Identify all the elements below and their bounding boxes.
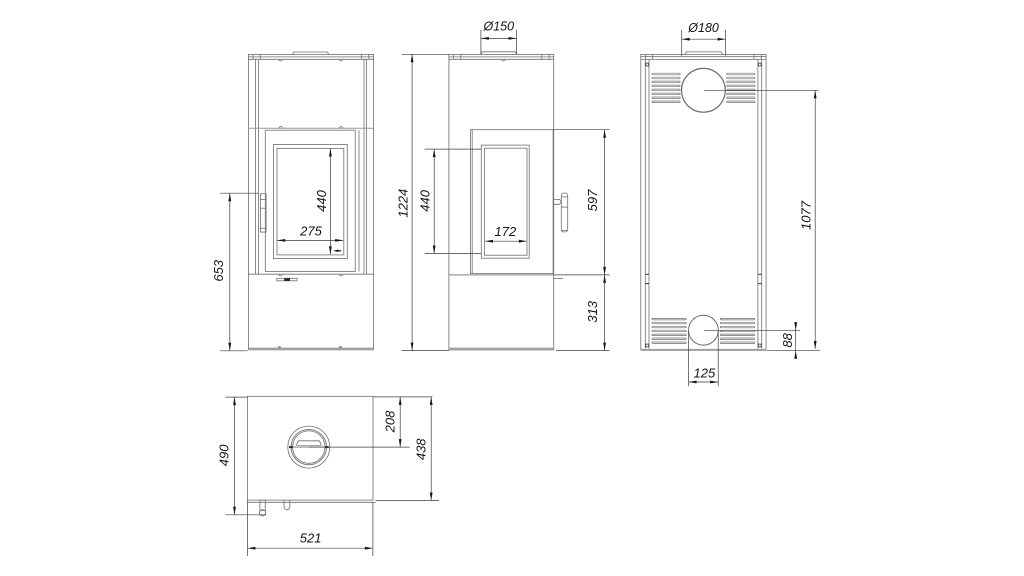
svg-text:313: 313 xyxy=(585,300,600,322)
svg-text:490: 490 xyxy=(217,444,232,466)
svg-text:597: 597 xyxy=(585,189,600,211)
svg-text:88: 88 xyxy=(780,332,795,347)
svg-text:275: 275 xyxy=(299,224,322,239)
svg-text:440: 440 xyxy=(314,189,329,211)
svg-text:Ø180: Ø180 xyxy=(687,21,719,35)
svg-text:438: 438 xyxy=(413,438,428,460)
svg-text:125: 125 xyxy=(694,365,716,380)
svg-text:653: 653 xyxy=(211,259,226,281)
svg-text:1077: 1077 xyxy=(798,200,813,230)
svg-text:Ø150: Ø150 xyxy=(483,19,515,33)
svg-text:208: 208 xyxy=(383,410,398,433)
svg-text:172: 172 xyxy=(495,224,517,239)
svg-text:521: 521 xyxy=(300,531,322,546)
svg-text:1224: 1224 xyxy=(396,189,411,218)
svg-text:440: 440 xyxy=(417,189,432,211)
